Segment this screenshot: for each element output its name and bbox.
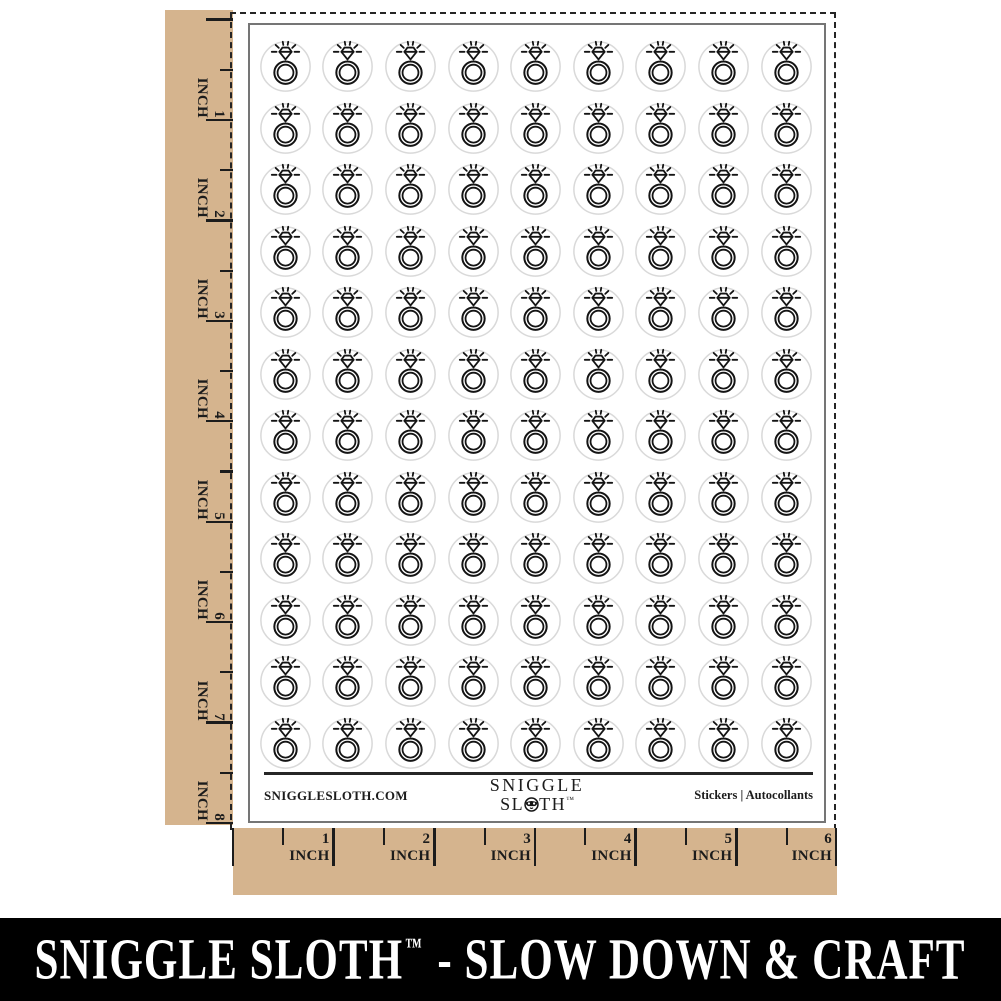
- diamond-ring-icon: [509, 102, 562, 155]
- diamond-ring-icon: [509, 532, 562, 585]
- ring-sticker: [384, 655, 437, 708]
- ring-sticker: [634, 40, 687, 93]
- ring-sticker: [760, 163, 813, 216]
- diamond-ring-icon: [321, 225, 374, 278]
- sticker-grid: [254, 36, 818, 774]
- diamond-ring-icon: [572, 532, 625, 585]
- diamond-ring-icon: [447, 286, 500, 339]
- ring-sticker: [572, 286, 625, 339]
- diamond-ring-icon: [384, 471, 437, 524]
- ring-sticker: [572, 40, 625, 93]
- ring-sticker: [572, 348, 625, 401]
- diamond-ring-icon: [634, 286, 687, 339]
- diamond-ring-icon: [447, 655, 500, 708]
- ring-sticker: [634, 286, 687, 339]
- ring-sticker: [760, 225, 813, 278]
- bottom-ruler-label: 2INCH: [350, 831, 430, 866]
- ring-sticker: [509, 409, 562, 462]
- ring-sticker: [321, 594, 374, 647]
- diamond-ring-icon: [572, 594, 625, 647]
- diamond-ring-icon: [634, 594, 687, 647]
- diamond-ring-icon: [384, 655, 437, 708]
- diamond-ring-icon: [760, 163, 813, 216]
- diamond-ring-icon: [509, 348, 562, 401]
- ring-sticker: [572, 655, 625, 708]
- diamond-ring-icon: [760, 532, 813, 585]
- diamond-ring-icon: [384, 40, 437, 93]
- diamond-ring-icon: [697, 102, 750, 155]
- left-ruler-label: 7INCH: [191, 657, 227, 721]
- ring-sticker: [259, 348, 312, 401]
- left-ruler-label: 2INCH: [191, 154, 227, 218]
- diamond-ring-icon: [697, 286, 750, 339]
- ring-sticker: [447, 348, 500, 401]
- ruler-tick: [206, 420, 233, 422]
- diamond-ring-icon: [447, 102, 500, 155]
- diamond-ring-icon: [572, 40, 625, 93]
- diamond-ring-icon: [760, 594, 813, 647]
- ruler-tick: [206, 721, 233, 723]
- diamond-ring-icon: [572, 163, 625, 216]
- ring-sticker: [572, 594, 625, 647]
- ring-sticker: [634, 163, 687, 216]
- diamond-ring-icon: [259, 225, 312, 278]
- diamond-ring-icon: [321, 40, 374, 93]
- diamond-ring-icon: [572, 655, 625, 708]
- diamond-ring-icon: [760, 348, 813, 401]
- logo-line2-start: SL: [500, 794, 524, 814]
- diamond-ring-icon: [259, 594, 312, 647]
- diamond-ring-icon: [509, 225, 562, 278]
- diamond-ring-icon: [697, 225, 750, 278]
- product-image: SNIGGLESLOTH.COM SNIGGLE SLTH™ Stickers …: [0, 0, 1001, 1001]
- stickers-label: Stickers | Autocollants: [613, 788, 813, 803]
- diamond-ring-icon: [259, 655, 312, 708]
- ring-sticker: [509, 348, 562, 401]
- diamond-ring-icon: [321, 532, 374, 585]
- bottom-ruler-label: 1INCH: [250, 831, 330, 866]
- ring-sticker: [321, 717, 374, 770]
- diamond-ring-icon: [634, 471, 687, 524]
- diamond-ring-icon: [509, 471, 562, 524]
- diamond-ring-icon: [321, 102, 374, 155]
- banner-text: SNIGGLE SLOTH™- SLOW DOWN & CRAFT: [35, 926, 966, 993]
- ring-sticker: [321, 163, 374, 216]
- sniggle-sloth-logo: SNIGGLE SLTH™: [437, 776, 637, 813]
- ruler-tick: [206, 219, 233, 221]
- diamond-ring-icon: [321, 286, 374, 339]
- diamond-ring-icon: [321, 594, 374, 647]
- diamond-ring-icon: [259, 102, 312, 155]
- ring-sticker: [259, 40, 312, 93]
- ring-sticker: [697, 286, 750, 339]
- ring-sticker: [321, 532, 374, 585]
- ring-sticker: [321, 225, 374, 278]
- ring-sticker: [572, 163, 625, 216]
- diamond-ring-icon: [509, 409, 562, 462]
- diamond-ring-icon: [259, 532, 312, 585]
- diamond-ring-icon: [447, 409, 500, 462]
- diamond-ring-icon: [259, 286, 312, 339]
- ring-sticker: [384, 225, 437, 278]
- left-ruler-label: 5INCH: [191, 456, 227, 520]
- diamond-ring-icon: [384, 225, 437, 278]
- sloth-face-icon: [524, 797, 539, 812]
- ring-sticker: [634, 102, 687, 155]
- ruler-tick: [206, 320, 233, 322]
- diamond-ring-icon: [697, 655, 750, 708]
- ring-sticker: [384, 532, 437, 585]
- ring-sticker: [634, 409, 687, 462]
- ring-sticker: [259, 225, 312, 278]
- ring-sticker: [509, 655, 562, 708]
- diamond-ring-icon: [259, 409, 312, 462]
- ring-sticker: [760, 594, 813, 647]
- ring-sticker: [509, 225, 562, 278]
- ruler-tick: [206, 621, 233, 623]
- ring-sticker: [321, 102, 374, 155]
- ring-sticker: [634, 655, 687, 708]
- ring-sticker: [760, 655, 813, 708]
- ring-sticker: [697, 40, 750, 93]
- diamond-ring-icon: [321, 163, 374, 216]
- website-url: SNIGGLESLOTH.COM: [264, 788, 408, 804]
- diamond-ring-icon: [634, 655, 687, 708]
- banner-trademark: ™: [406, 934, 423, 959]
- ruler-tick: [835, 828, 837, 866]
- diamond-ring-icon: [572, 102, 625, 155]
- ring-sticker: [447, 225, 500, 278]
- ring-sticker: [447, 594, 500, 647]
- ring-sticker: [259, 532, 312, 585]
- ring-sticker: [760, 471, 813, 524]
- ring-sticker: [384, 102, 437, 155]
- ring-sticker: [259, 655, 312, 708]
- ring-sticker: [572, 102, 625, 155]
- ring-sticker: [509, 717, 562, 770]
- ring-sticker: [447, 286, 500, 339]
- diamond-ring-icon: [509, 163, 562, 216]
- ruler-tick: [206, 18, 233, 20]
- ruler-tick: [735, 828, 737, 866]
- ring-sticker: [321, 40, 374, 93]
- diamond-ring-icon: [697, 532, 750, 585]
- diamond-ring-icon: [634, 532, 687, 585]
- ring-sticker: [321, 409, 374, 462]
- banner-tagline: - SLOW DOWN & CRAFT: [438, 927, 966, 992]
- diamond-ring-icon: [697, 471, 750, 524]
- ring-sticker: [384, 286, 437, 339]
- diamond-ring-icon: [259, 163, 312, 216]
- bottom-ruler-label: 3INCH: [451, 831, 531, 866]
- ring-sticker: [384, 717, 437, 770]
- diamond-ring-icon: [634, 163, 687, 216]
- ring-sticker: [384, 348, 437, 401]
- logo-trademark: ™: [566, 795, 574, 804]
- diamond-ring-icon: [760, 40, 813, 93]
- bottom-ruler-label: 5INCH: [652, 831, 732, 866]
- diamond-ring-icon: [321, 409, 374, 462]
- ring-sticker: [697, 225, 750, 278]
- ring-sticker: [384, 594, 437, 647]
- diamond-ring-icon: [447, 348, 500, 401]
- ring-sticker: [384, 163, 437, 216]
- ring-sticker: [697, 471, 750, 524]
- ring-sticker: [321, 655, 374, 708]
- ring-sticker: [447, 40, 500, 93]
- ring-sticker: [697, 655, 750, 708]
- diamond-ring-icon: [697, 594, 750, 647]
- logo-line2: SLTH™: [437, 795, 637, 813]
- diamond-ring-icon: [384, 717, 437, 770]
- ring-sticker: [697, 717, 750, 770]
- diamond-ring-icon: [760, 102, 813, 155]
- ring-sticker: [509, 286, 562, 339]
- diamond-ring-icon: [259, 40, 312, 93]
- bottom-ruler-label: 6INCH: [752, 831, 832, 866]
- diamond-ring-icon: [259, 717, 312, 770]
- diamond-ring-icon: [697, 163, 750, 216]
- ring-sticker: [509, 163, 562, 216]
- ruler-tick: [634, 828, 636, 866]
- logo-line1: SNIGGLE: [437, 776, 637, 794]
- ruler-tick: [534, 828, 536, 866]
- ring-sticker: [634, 225, 687, 278]
- ring-sticker: [447, 717, 500, 770]
- ring-sticker: [509, 594, 562, 647]
- ring-sticker: [572, 471, 625, 524]
- ring-sticker: [634, 348, 687, 401]
- diamond-ring-icon: [509, 286, 562, 339]
- diamond-ring-icon: [447, 40, 500, 93]
- bottom-ruler-label: 4INCH: [552, 831, 632, 866]
- ring-sticker: [634, 471, 687, 524]
- diamond-ring-icon: [259, 471, 312, 524]
- diamond-ring-icon: [760, 409, 813, 462]
- diamond-ring-icon: [760, 655, 813, 708]
- ring-sticker: [259, 102, 312, 155]
- diamond-ring-icon: [384, 532, 437, 585]
- diamond-ring-icon: [572, 717, 625, 770]
- ring-sticker: [447, 471, 500, 524]
- ring-sticker: [697, 409, 750, 462]
- bottom-banner: SNIGGLE SLOTH™- SLOW DOWN & CRAFT: [0, 918, 1001, 1001]
- ring-sticker: [572, 532, 625, 585]
- logo-line2-end: TH: [539, 794, 566, 814]
- ring-sticker: [259, 286, 312, 339]
- ring-sticker: [447, 655, 500, 708]
- diamond-ring-icon: [447, 594, 500, 647]
- ring-sticker: [259, 163, 312, 216]
- ring-sticker: [634, 532, 687, 585]
- ring-sticker: [760, 40, 813, 93]
- ruler-tick: [332, 828, 334, 866]
- ring-sticker: [509, 532, 562, 585]
- ring-sticker: [321, 348, 374, 401]
- ring-sticker: [259, 717, 312, 770]
- diamond-ring-icon: [321, 655, 374, 708]
- left-ruler-label: 8INCH: [191, 757, 227, 821]
- diamond-ring-icon: [321, 471, 374, 524]
- ring-sticker: [509, 102, 562, 155]
- ring-sticker: [384, 409, 437, 462]
- ring-sticker: [447, 163, 500, 216]
- ring-sticker: [321, 471, 374, 524]
- diamond-ring-icon: [384, 409, 437, 462]
- ring-sticker: [509, 471, 562, 524]
- diamond-ring-icon: [634, 409, 687, 462]
- ring-sticker: [572, 225, 625, 278]
- ring-sticker: [760, 286, 813, 339]
- diamond-ring-icon: [447, 163, 500, 216]
- ring-sticker: [634, 594, 687, 647]
- ring-sticker: [760, 409, 813, 462]
- ring-sticker: [447, 532, 500, 585]
- ring-sticker: [697, 102, 750, 155]
- diamond-ring-icon: [321, 717, 374, 770]
- ring-sticker: [634, 717, 687, 770]
- diamond-ring-icon: [697, 40, 750, 93]
- diamond-ring-icon: [259, 348, 312, 401]
- diamond-ring-icon: [697, 348, 750, 401]
- left-ruler-label: 4INCH: [191, 355, 227, 419]
- ring-sticker: [384, 40, 437, 93]
- ring-sticker: [321, 286, 374, 339]
- ring-sticker: [697, 594, 750, 647]
- left-ruler-label: 6INCH: [191, 556, 227, 620]
- diamond-ring-icon: [697, 409, 750, 462]
- ring-sticker: [572, 717, 625, 770]
- diamond-ring-icon: [572, 348, 625, 401]
- ring-sticker: [259, 594, 312, 647]
- left-ruler-label: 3INCH: [191, 255, 227, 319]
- ring-sticker: [760, 348, 813, 401]
- diamond-ring-icon: [760, 717, 813, 770]
- ruler-tick: [206, 119, 233, 121]
- diamond-ring-icon: [384, 594, 437, 647]
- ring-sticker: [259, 471, 312, 524]
- ring-sticker: [697, 163, 750, 216]
- diamond-ring-icon: [509, 655, 562, 708]
- diamond-ring-icon: [760, 286, 813, 339]
- diamond-ring-icon: [634, 348, 687, 401]
- diamond-ring-icon: [509, 717, 562, 770]
- diamond-ring-icon: [697, 717, 750, 770]
- ring-sticker: [572, 409, 625, 462]
- diamond-ring-icon: [447, 225, 500, 278]
- diamond-ring-icon: [447, 471, 500, 524]
- ruler-tick: [206, 822, 233, 824]
- diamond-ring-icon: [509, 40, 562, 93]
- ruler-tick: [232, 828, 234, 866]
- ruler-tick: [433, 828, 435, 866]
- ring-sticker: [697, 532, 750, 585]
- diamond-ring-icon: [384, 348, 437, 401]
- diamond-ring-icon: [447, 717, 500, 770]
- ring-sticker: [509, 40, 562, 93]
- diamond-ring-icon: [634, 40, 687, 93]
- diamond-ring-icon: [572, 225, 625, 278]
- ring-sticker: [760, 102, 813, 155]
- left-ruler-label: 1INCH: [191, 54, 227, 118]
- ring-sticker: [259, 409, 312, 462]
- ring-sticker: [760, 532, 813, 585]
- diamond-ring-icon: [572, 286, 625, 339]
- diamond-ring-icon: [572, 471, 625, 524]
- banner-brand: SNIGGLE SLOTH: [35, 927, 404, 992]
- ruler-tick: [206, 521, 233, 523]
- ring-sticker: [384, 471, 437, 524]
- diamond-ring-icon: [384, 286, 437, 339]
- ring-sticker: [447, 102, 500, 155]
- ring-sticker: [760, 717, 813, 770]
- diamond-ring-icon: [384, 102, 437, 155]
- diamond-ring-icon: [384, 163, 437, 216]
- diamond-ring-icon: [760, 471, 813, 524]
- diamond-ring-icon: [572, 409, 625, 462]
- ring-sticker: [697, 348, 750, 401]
- diamond-ring-icon: [321, 348, 374, 401]
- diamond-ring-icon: [447, 532, 500, 585]
- diamond-ring-icon: [634, 102, 687, 155]
- diamond-ring-icon: [760, 225, 813, 278]
- ring-sticker: [447, 409, 500, 462]
- diamond-ring-icon: [509, 594, 562, 647]
- diamond-ring-icon: [634, 225, 687, 278]
- diamond-ring-icon: [634, 717, 687, 770]
